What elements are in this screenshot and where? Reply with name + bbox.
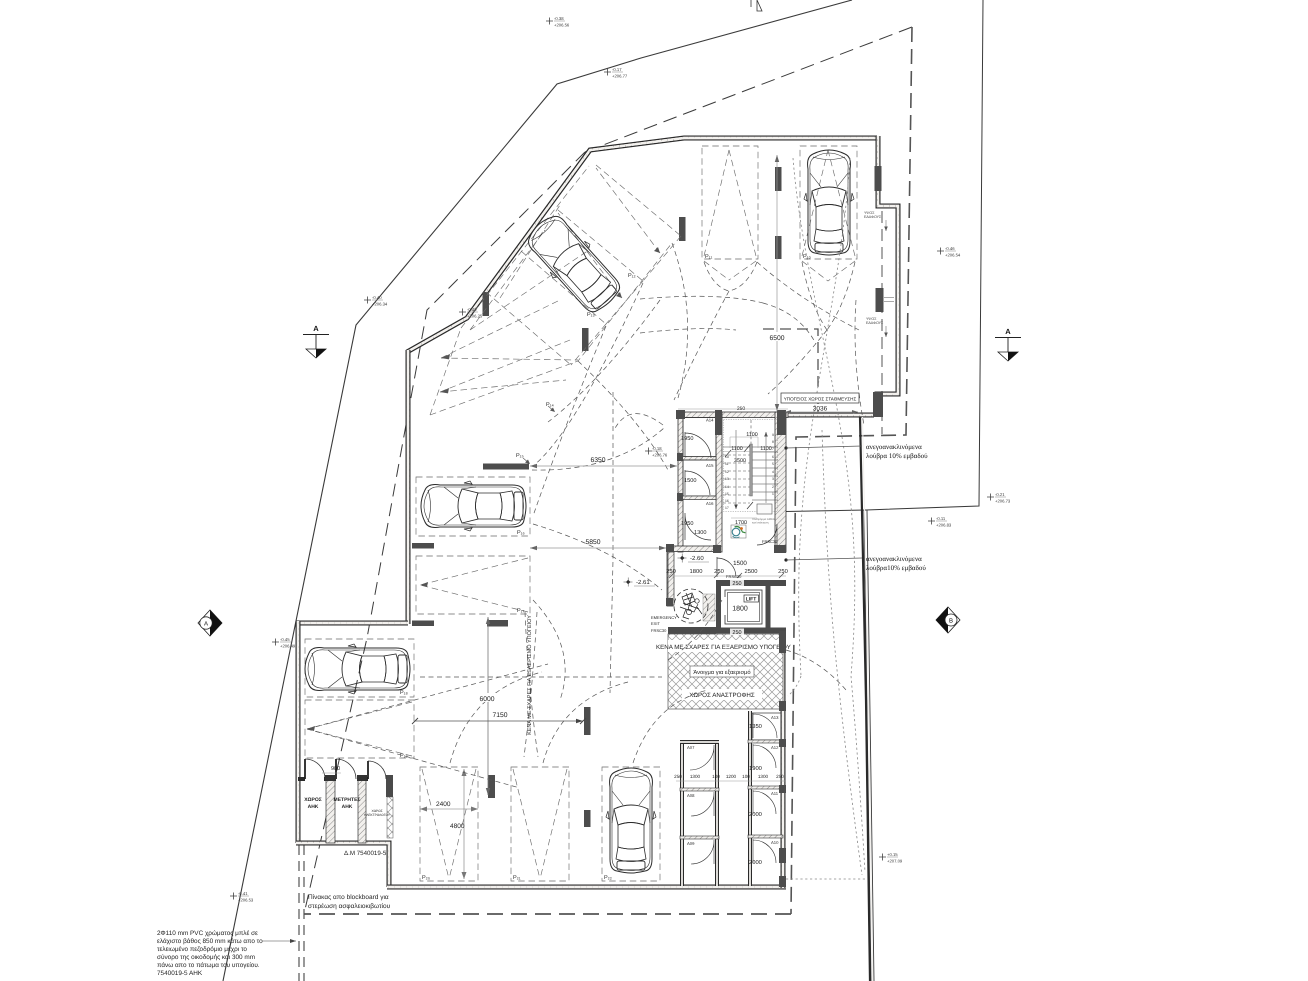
svg-text:1: 1	[772, 492, 774, 496]
svg-text:2000: 2000	[749, 811, 762, 818]
svg-text:6000: 6000	[479, 696, 494, 703]
svg-text:P₂₀: P₂₀	[422, 875, 430, 881]
svg-text:14: 14	[725, 485, 729, 489]
svg-text:+207.09: +207.09	[887, 859, 903, 864]
svg-text:Πίνακας απο blockboard για: Πίνακας απο blockboard για	[308, 894, 389, 901]
svg-text:A: A	[1005, 327, 1011, 336]
svg-text:EMERGENCY: EMERGENCY	[651, 615, 677, 620]
svg-text:+206.83: +206.83	[936, 523, 952, 528]
svg-text:P₁₁: P₁₁	[705, 254, 713, 260]
svg-text:A09: A09	[687, 841, 695, 846]
svg-text:1350: 1350	[749, 723, 762, 730]
svg-text:-0.38: -0.38	[554, 16, 564, 21]
svg-text:1700: 1700	[735, 520, 747, 526]
svg-text:+206.34: +206.34	[372, 302, 388, 307]
svg-text:ΧΩΡΟΣ: ΧΩΡΟΣ	[304, 797, 322, 803]
svg-text:+206.73: +206.73	[995, 499, 1011, 504]
svg-text:6350: 6350	[590, 457, 605, 464]
svg-text:FRSC30: FRSC30	[762, 539, 778, 544]
svg-text:P₁₆: P₁₆	[517, 530, 525, 536]
svg-text:τελειωμένο πεζοδρόμιο μέχρι το: τελειωμένο πεζοδρόμιο μέχρι το	[157, 946, 247, 953]
svg-text:-0.46: -0.46	[945, 246, 955, 251]
svg-text:9: 9	[772, 433, 774, 437]
svg-text:15: 15	[725, 492, 729, 496]
svg-text:1300: 1300	[758, 774, 769, 779]
svg-text:P₁₄: P₁₄	[546, 402, 555, 408]
svg-text:1300: 1300	[690, 774, 701, 779]
svg-text:8: 8	[772, 440, 774, 444]
svg-text:1800: 1800	[690, 568, 703, 575]
svg-text:P₁₈: P₁₈	[400, 690, 408, 696]
svg-text:κατ'επέκταση: κατ'επέκταση	[752, 521, 769, 525]
svg-text:1800: 1800	[732, 606, 748, 613]
svg-text:6500: 6500	[769, 335, 784, 342]
svg-text:4800: 4800	[450, 823, 465, 830]
svg-text:3: 3	[772, 477, 774, 481]
svg-text:1100: 1100	[731, 446, 743, 452]
svg-text:-0.49: -0.49	[467, 307, 477, 312]
svg-text:2Φ110 mm PVC χρώματος μπλέ σε: 2Φ110 mm PVC χρώματος μπλέ σε	[157, 930, 258, 937]
svg-text:P₁₅: P₁₅	[516, 453, 524, 459]
svg-text:P₁₂: P₁₂	[628, 273, 636, 279]
svg-text:1500: 1500	[684, 478, 696, 484]
svg-text:ελάχιστο βάθος 850 mm κάτω απο: ελάχιστο βάθος 850 mm κάτω απο το	[157, 938, 263, 945]
svg-text:1950: 1950	[681, 521, 693, 527]
svg-text:-0.11: -0.11	[936, 516, 946, 521]
svg-text:λούβρα 10% εμβαδού: λούβρα 10% εμβαδού	[866, 452, 928, 460]
svg-text:16: 16	[725, 499, 729, 503]
svg-text:A15: A15	[706, 463, 714, 468]
svg-text:λούβρα10% εμβαδού: λούβρα10% εμβαδού	[866, 564, 926, 572]
svg-text:Δ.Μ 7540019-5: Δ.Μ 7540019-5	[344, 850, 387, 857]
svg-text:-0.17: -0.17	[612, 67, 622, 72]
svg-text:ΑΗΚ: ΑΗΚ	[342, 804, 353, 810]
svg-text:πάνω απο το πάτωμα του υπογείο: πάνω απο το πάτωμα του υπογείου.	[157, 962, 260, 969]
svg-text:ΕΔΑΦΟΥΣ: ΕΔΑΦΟΥΣ	[866, 321, 884, 325]
svg-text:ανεγοανακλινόμενα: ανεγοανακλινόμενα	[866, 443, 922, 451]
svg-text:A11: A11	[771, 791, 779, 796]
svg-text:250: 250	[666, 568, 676, 575]
svg-text:+206.76: +206.76	[652, 453, 668, 458]
svg-text:-0.45: -0.45	[280, 637, 290, 642]
svg-text:P₁₉: P₁₉	[400, 753, 408, 759]
svg-text:ΧΩΡΟΣ ΑΝΑΣΤΡΟΦΗΣ: ΧΩΡΟΣ ΑΝΑΣΤΡΟΦΗΣ	[689, 692, 755, 699]
svg-text:2: 2	[772, 485, 774, 489]
svg-text:ΚΕΝΑ ΜΕ ΣΧΑΡΕΣ ΓΙΑ ΕΞΑΕΡΙΣΜΟ Υ: ΚΕΝΑ ΜΕ ΣΧΑΡΕΣ ΓΙΑ ΕΞΑΕΡΙΣΜΟ ΥΠΟΓΕΙΟΥ	[656, 644, 791, 651]
svg-text:ΜΕΤΡΗΤΕΣ: ΜΕΤΡΗΤΕΣ	[334, 797, 361, 803]
svg-text:+206.49: +206.49	[280, 644, 296, 649]
svg-text:250: 250	[714, 568, 724, 575]
svg-text:2400: 2400	[436, 801, 451, 808]
svg-text:900: 900	[331, 766, 340, 772]
svg-text:250: 250	[732, 630, 741, 636]
svg-text:+0.15: +0.15	[887, 852, 898, 857]
svg-text:7: 7	[772, 447, 774, 451]
svg-text:A07: A07	[687, 745, 695, 750]
svg-text:Άνοιγμα για εξαερισμό: Άνοιγμα για εξαερισμό	[693, 669, 750, 676]
svg-text:-0.41: -0.41	[238, 891, 248, 896]
svg-text:A12: A12	[771, 745, 779, 750]
svg-text:250: 250	[776, 774, 784, 779]
svg-text:-0.18: -0.18	[652, 446, 662, 451]
svg-text:ΥΠΟΓΕΙΟΣ ΧΩΡΟΣ ΣΤΑΘΜΕΥΣΗΣ: ΥΠΟΓΕΙΟΣ ΧΩΡΟΣ ΣΤΑΘΜΕΥΣΗΣ	[784, 397, 857, 402]
svg-text:11: 11	[725, 462, 729, 466]
svg-text:-2.60: -2.60	[690, 555, 704, 562]
svg-text:-0.40: -0.40	[372, 295, 382, 300]
svg-text:+206.53: +206.53	[238, 898, 254, 903]
svg-text:+206.25: +206.25	[467, 314, 483, 319]
svg-text:1300: 1300	[694, 530, 706, 536]
svg-text:ΑΗΚ: ΑΗΚ	[308, 804, 319, 810]
svg-text:+206.56: +206.56	[554, 23, 570, 28]
svg-text:100: 100	[712, 774, 720, 779]
svg-text:A14: A14	[706, 418, 714, 423]
svg-text:σύνορο της οικοδομής και 300 m: σύνορο της οικοδομής και 300 mm	[157, 954, 255, 961]
svg-text:στερέωση ασφαλειοκιβωτίου: στερέωση ασφαλειοκιβωτίου	[308, 903, 391, 910]
svg-text:250: 250	[732, 581, 741, 587]
svg-text:P₁₇: P₁₇	[517, 608, 525, 614]
svg-text:A: A	[204, 621, 208, 628]
svg-text:4: 4	[772, 470, 774, 474]
svg-text:A: A	[313, 324, 319, 333]
svg-text:-0.21: -0.21	[995, 492, 1005, 497]
svg-text:1500: 1500	[733, 560, 747, 567]
svg-text:P₁₃: P₁₃	[587, 312, 595, 318]
svg-text:250: 250	[778, 568, 788, 575]
svg-text:2000: 2000	[749, 859, 762, 866]
svg-text:A13: A13	[771, 715, 779, 720]
svg-text:B: B	[949, 618, 953, 625]
svg-text:FRSC30: FRSC30	[651, 628, 667, 633]
svg-text:1950: 1950	[681, 436, 693, 442]
svg-text:ΚΕΝΑ ΜΕ ΣΧΑΡΕΣ ΓΙΑ ΕΞΑΕΡΙΣΜΟ Υ: ΚΕΝΑ ΜΕ ΣΧΑΡΕΣ ΓΙΑ ΕΞΑΕΡΙΣΜΟ ΥΠΟΓΕΙΟΥ	[527, 615, 533, 735]
svg-text:100: 100	[742, 774, 750, 779]
svg-text:3036: 3036	[813, 406, 828, 413]
svg-text:7540019-5 ΑΗΚ: 7540019-5 ΑΗΚ	[157, 970, 203, 977]
svg-text:ανεγοανακλινόμενα: ανεγοανακλινόμενα	[866, 555, 922, 563]
svg-text:A08: A08	[687, 793, 695, 798]
svg-text:-2.61: -2.61	[636, 579, 650, 586]
svg-text:5850: 5850	[585, 539, 600, 546]
svg-text:A10: A10	[771, 840, 779, 845]
svg-text:1200: 1200	[726, 774, 737, 779]
svg-text:250: 250	[674, 774, 682, 779]
svg-text:ΗΛΕΚΤΡΟΛΟΓΟΥ: ΗΛΕΚΤΡΟΛΟΓΟΥ	[364, 813, 391, 817]
svg-text:12: 12	[725, 470, 729, 474]
svg-text:6: 6	[772, 455, 774, 459]
svg-text:P₂₁: P₂₁	[513, 875, 521, 881]
svg-text:+206.54: +206.54	[945, 253, 961, 258]
svg-text:FRSC30: FRSC30	[726, 574, 742, 579]
svg-text:7150: 7150	[492, 712, 507, 719]
svg-text:A16: A16	[706, 501, 714, 506]
svg-text:LIFT: LIFT	[746, 597, 757, 603]
svg-text:5: 5	[772, 462, 774, 466]
svg-text:1900: 1900	[749, 765, 762, 772]
svg-text:P₂₂: P₂₂	[604, 875, 612, 881]
svg-text:13: 13	[725, 477, 729, 481]
svg-text:10: 10	[725, 455, 729, 459]
svg-text:+206.77: +206.77	[612, 74, 628, 79]
svg-text:2500: 2500	[745, 568, 758, 575]
svg-text:17: 17	[725, 506, 729, 510]
svg-text:ΕΔΑΦΟΥΣ: ΕΔΑΦΟΥΣ	[864, 215, 882, 219]
svg-text:EXIT: EXIT	[651, 621, 660, 626]
